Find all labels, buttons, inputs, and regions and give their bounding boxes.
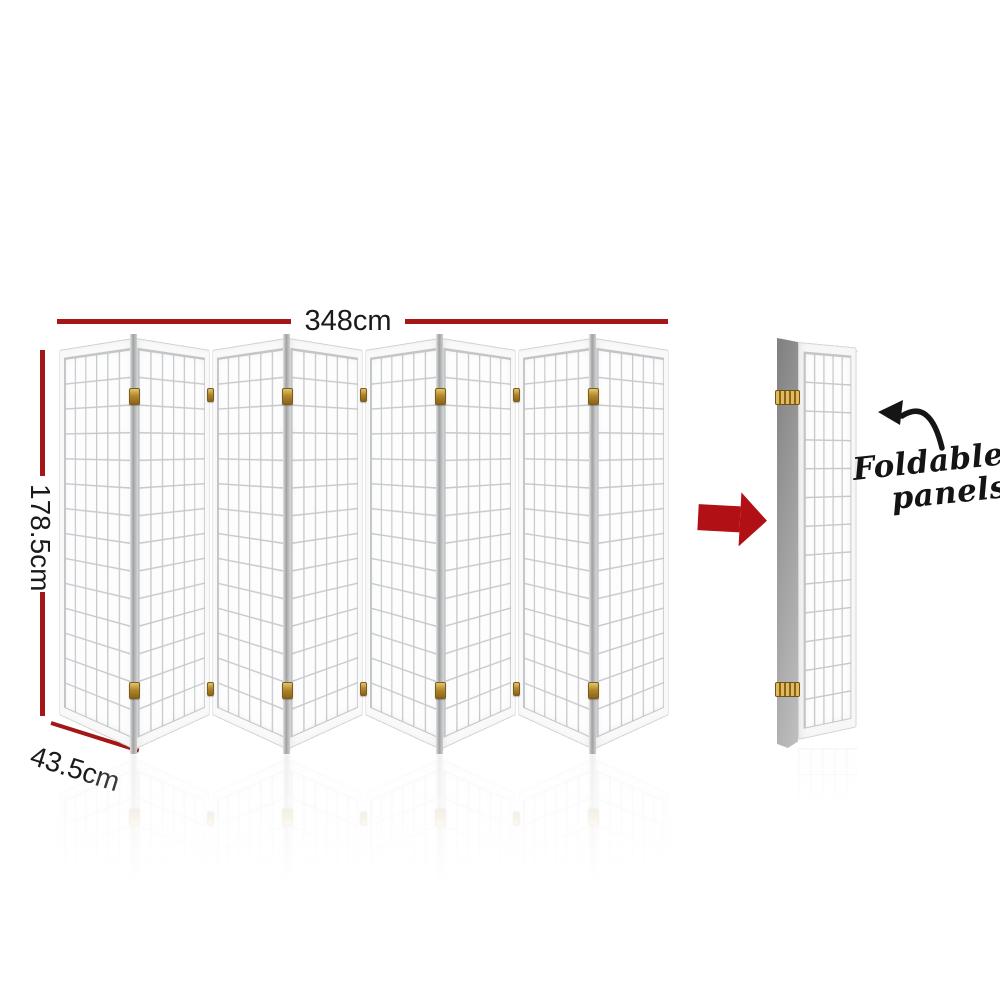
- screen-panel: [60, 337, 138, 751]
- floor-reflection: [57, 748, 669, 1000]
- fold-transform-arrow-icon: [697, 490, 770, 548]
- screen-panel: [284, 757, 362, 1000]
- shoji-grid: [596, 770, 664, 1000]
- brass-hinge: [588, 809, 599, 826]
- shoji-grid: [370, 770, 438, 1000]
- shoji-grid: [443, 348, 511, 738]
- brass-hinge: [513, 388, 520, 402]
- brass-hinge: [282, 809, 293, 826]
- brass-hinge: [207, 812, 214, 826]
- screen-panel: [213, 337, 291, 751]
- screen-panel: [213, 757, 291, 1000]
- shoji-grid: [137, 348, 205, 738]
- shoji-grid: [370, 348, 438, 738]
- hinge-stile: [436, 754, 443, 1000]
- screen-panel: [437, 337, 515, 751]
- screen-panel: [131, 337, 209, 751]
- brass-hinge: [435, 809, 446, 826]
- screen-panel: [284, 337, 362, 751]
- screen-panel: [590, 337, 668, 751]
- brass-hinge: [129, 809, 140, 826]
- shoji-grid: [64, 770, 132, 1000]
- hinge-stile: [589, 754, 596, 1000]
- shoji-grid: [137, 770, 205, 1000]
- brass-hinge: [513, 812, 520, 826]
- brass-hinge: [360, 682, 367, 696]
- height-dimension-line-top: [40, 350, 45, 476]
- brass-hinge: [282, 682, 293, 699]
- unfolded-room-divider: [57, 336, 669, 760]
- hinge-stile: [130, 754, 137, 1000]
- brass-hinge: [207, 682, 214, 696]
- brass-hinge: [360, 388, 367, 402]
- panel-zigzag-scene: [57, 336, 669, 760]
- brass-hinge: [129, 388, 140, 405]
- screen-panel: [519, 337, 597, 751]
- folded-floor-reflection: [798, 748, 858, 814]
- hinge-stile: [283, 754, 290, 1000]
- screen-panel: [131, 757, 209, 1000]
- screen-panel: [590, 757, 668, 1000]
- room-divider-dimension-diagram: 348cm 178.5cm 43.5cm Foldable panels: [0, 0, 1000, 1000]
- brass-hinge: [513, 682, 520, 696]
- shoji-grid: [217, 348, 285, 738]
- brass-hinge: [435, 682, 446, 699]
- shoji-grid: [64, 348, 132, 738]
- height-dimension-label: 178.5cm: [24, 484, 56, 591]
- brass-hinge: [435, 388, 446, 405]
- screen-panel: [366, 757, 444, 1000]
- brass-hinge: [775, 682, 800, 697]
- width-dimension-line-left: [57, 319, 291, 324]
- foldable-panels-note: Foldable panels: [851, 438, 1000, 520]
- shoji-grid: [290, 348, 358, 738]
- shoji-grid: [217, 770, 285, 1000]
- shoji-grid: [523, 348, 591, 738]
- arrow-head: [739, 492, 769, 547]
- screen-panel: [366, 337, 444, 751]
- height-dimension-line-bottom: [40, 592, 45, 716]
- shoji-grid: [443, 770, 511, 1000]
- shoji-grid: [523, 770, 591, 1000]
- screen-panel: [437, 757, 515, 1000]
- width-dimension-label: 348cm: [297, 305, 399, 338]
- arrow-shaft: [697, 504, 740, 532]
- shoji-grid: [290, 770, 358, 1000]
- width-dimension-line-right: [405, 319, 668, 324]
- brass-hinge: [588, 388, 599, 405]
- brass-hinge: [129, 682, 140, 699]
- brass-hinge: [360, 812, 367, 826]
- shoji-grid: [804, 351, 852, 728]
- brass-hinge: [207, 388, 214, 402]
- brass-hinge: [775, 390, 800, 405]
- brass-hinge: [282, 388, 293, 405]
- screen-panel: [519, 757, 597, 1000]
- brass-hinge: [588, 682, 599, 699]
- shoji-grid: [596, 348, 664, 738]
- folded-front-face: [798, 342, 856, 740]
